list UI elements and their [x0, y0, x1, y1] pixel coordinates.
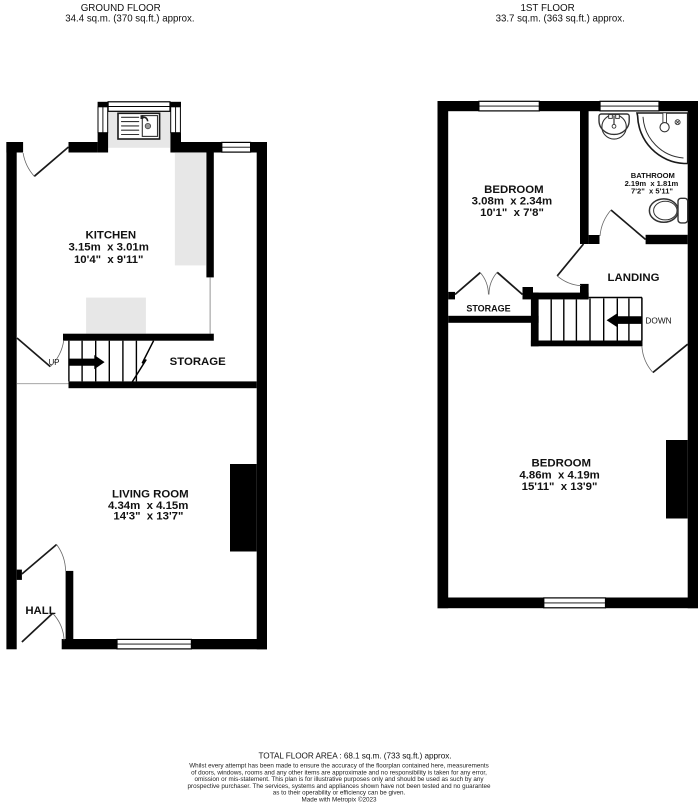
svg-text:10'1" x 7'8": 10'1" x 7'8": [480, 207, 544, 219]
svg-text:3.08m x 2.34m: 3.08m x 2.34m: [472, 196, 552, 208]
svg-text:KITCHEN: KITCHEN: [85, 230, 136, 242]
svg-text:BEDROOM: BEDROOM: [532, 458, 591, 470]
svg-text:BEDROOM: BEDROOM: [484, 184, 543, 196]
svg-text:34.4 sq.m. (370 sq.ft.) approx: 34.4 sq.m. (370 sq.ft.) approx.: [65, 13, 194, 24]
svg-text:HALL: HALL: [25, 605, 55, 617]
svg-text:14'3" x 13'7": 14'3" x 13'7": [113, 511, 183, 523]
svg-text:STORAGE: STORAGE: [466, 304, 510, 314]
svg-text:4.86m x 4.19m: 4.86m x 4.19m: [519, 470, 599, 482]
svg-text:DOWN: DOWN: [645, 316, 671, 326]
svg-text:7'2" x 5'11": 7'2" x 5'11": [631, 187, 673, 196]
svg-text:10'4" x 9'11": 10'4" x 9'11": [74, 254, 143, 266]
svg-text:LIVING ROOM: LIVING ROOM: [112, 488, 189, 500]
svg-text:3.15m x 3.01m: 3.15m x 3.01m: [68, 242, 148, 254]
svg-text:TOTAL FLOOR AREA : 68.1 sq.m.: TOTAL FLOOR AREA : 68.1 sq.m. (733 sq.ft…: [258, 752, 451, 761]
svg-text:33.7 sq.m. (363 sq.ft.) approx: 33.7 sq.m. (363 sq.ft.) approx.: [496, 13, 625, 24]
svg-text:STORAGE: STORAGE: [170, 356, 227, 368]
svg-text:Made with Metropix ©2023: Made with Metropix ©2023: [302, 796, 377, 803]
svg-text:LANDING: LANDING: [608, 272, 660, 284]
svg-text:15'11" x 13'9": 15'11" x 13'9": [522, 481, 598, 493]
